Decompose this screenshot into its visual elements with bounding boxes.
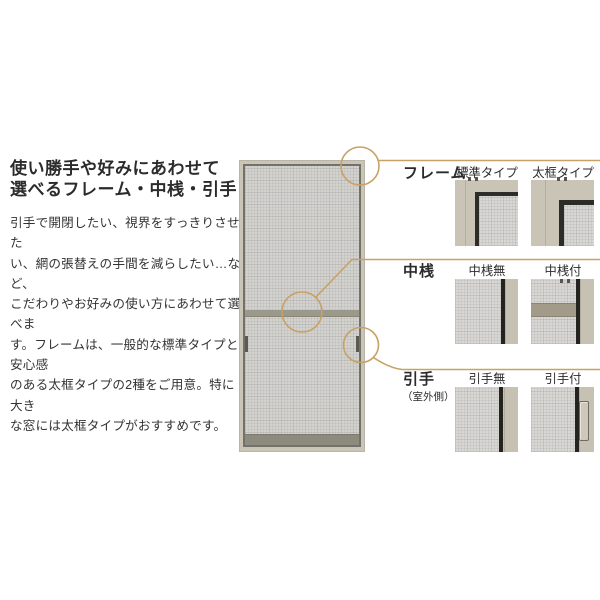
product-feature-page: { "colors": { "accent_line": "#c8a164", … [0, 0, 600, 600]
door-middle-rail [245, 310, 359, 317]
row-label-handle: 引手 [403, 368, 435, 389]
caption-standard-type: 標準タイプ [455, 163, 519, 181]
frame-edge-strip [504, 387, 518, 452]
title-line-2: 選べるフレーム・中桟・引手 [10, 179, 244, 200]
thumbnail-with-handle [531, 387, 594, 452]
frame-clip-mark [567, 279, 570, 283]
caption-thick-frame-type: 太框タイプ [531, 163, 595, 181]
row-label-midrail: 中桟 [403, 260, 435, 281]
door-bottom-rail [245, 434, 359, 445]
door-pull-handle-right [356, 336, 359, 352]
thumbnail-thick-frame [531, 180, 594, 246]
caption-no-midrail: 中桟無 [455, 261, 519, 279]
frame-seam [545, 180, 546, 246]
thumbnail-with-midrail [531, 279, 594, 344]
frame-clip-mark [468, 177, 471, 181]
caption-no-handle: 引手無 [455, 369, 519, 387]
frame-black-bar [499, 387, 503, 452]
frame-clip-mark [475, 177, 478, 181]
screen-door-illustration [239, 160, 365, 452]
frame-clip-mark [564, 177, 567, 181]
body-line: い、網の張替えの手間を減らしたい…など、 [10, 254, 244, 295]
body-line: のある太框タイプの2種をご用意。特に大き [10, 375, 244, 416]
body-line: 引手で開閉したい、視界をすっきりさせた [10, 213, 244, 254]
frame-seam [465, 180, 466, 246]
frame-clip-mark [560, 279, 563, 283]
body-line: こだわりやお好みの使い方にあわせて選べま [10, 294, 244, 335]
middle-rail-bar [531, 303, 576, 317]
title-line-1: 使い勝手や好みにあわせて [10, 158, 244, 179]
mesh-corner [475, 192, 518, 246]
frame-edge-strip [580, 279, 594, 344]
intro-paragraph: 引手で開閉したい、視界をすっきりさせた い、網の張替えの手間を減らしたい…など、… [10, 213, 244, 436]
door-mesh-panel [243, 164, 361, 447]
page-title: 使い勝手や好みにあわせて 選べるフレーム・中桟・引手 [10, 158, 244, 200]
thumbnail-no-midrail [455, 279, 518, 344]
thumbnail-no-handle [455, 387, 518, 452]
intro-text-block: 使い勝手や好みにあわせて 選べるフレーム・中桟・引手 引手で開閉したい、視界をす… [10, 158, 244, 436]
thumbnail-standard-frame [455, 180, 518, 246]
body-line: す。フレームは、一般的な標準タイプと安心感 [10, 335, 244, 376]
frame-clip-mark [557, 177, 560, 181]
frame-edge-strip [505, 279, 518, 344]
door-pull-handle-left [245, 336, 248, 352]
body-line: な窓には太框タイプがおすすめです。 [10, 416, 244, 436]
caption-with-handle: 引手付 [531, 369, 595, 387]
row-note-outdoor-side: （室外側） [402, 389, 455, 404]
pull-handle [579, 401, 589, 441]
caption-with-midrail: 中桟付 [531, 261, 595, 279]
mesh-corner [559, 200, 594, 246]
